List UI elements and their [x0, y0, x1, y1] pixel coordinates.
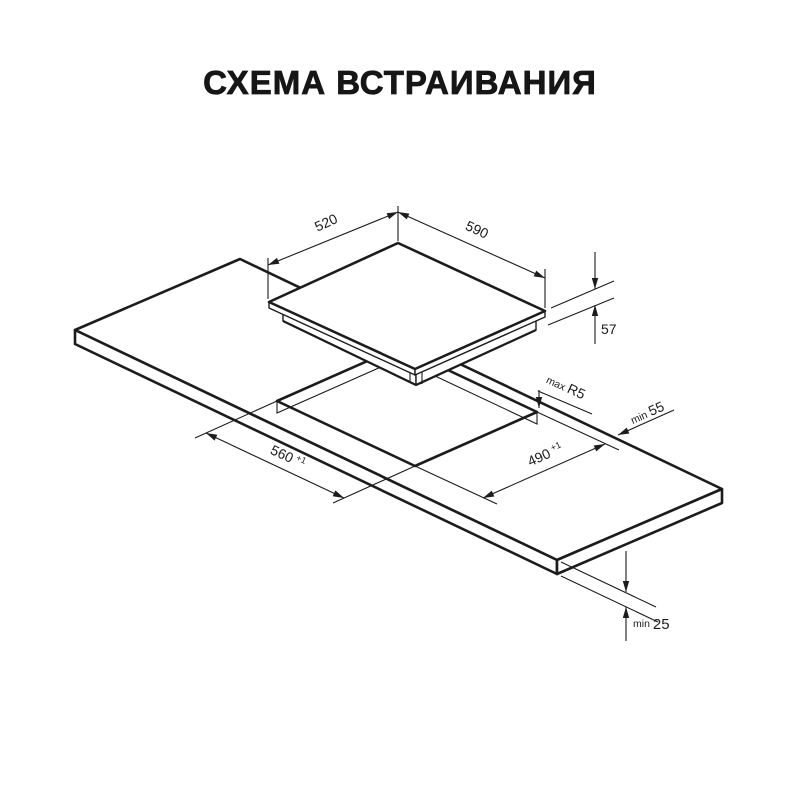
dim-ext-line: [561, 562, 656, 607]
dim-label-corner-radius: maxR5: [544, 371, 588, 403]
dim-label-hob-depth: 520: [312, 210, 340, 234]
dim-label-hob-height: 57: [601, 321, 617, 337]
dim-ext-line: [551, 281, 614, 308]
installation-diagram: 520 590 57 maxR5 min55: [0, 0, 800, 800]
page: СХЕМА ВСТРАИВАНИЯ: [0, 0, 800, 800]
dim-ext-line: [561, 576, 658, 622]
dim-rear-clearance: min55: [618, 398, 674, 435]
dim-label-hob-width: 590: [463, 217, 491, 241]
dim-hob-height: 57: [548, 252, 617, 344]
